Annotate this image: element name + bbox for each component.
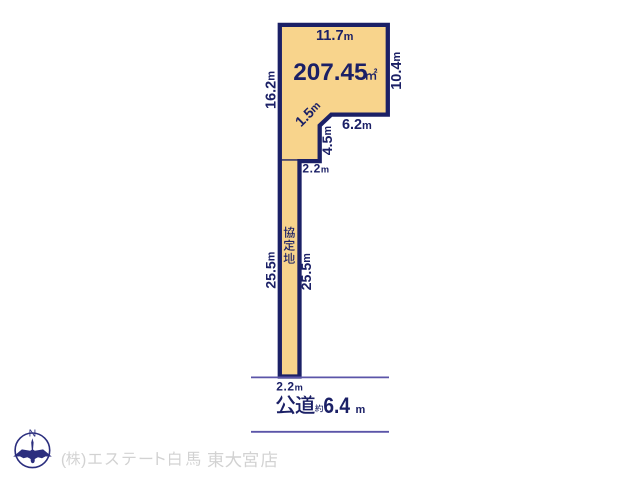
- svg-text:207.45: 207.45: [293, 59, 367, 86]
- svg-text:4.5m: 4.5m: [320, 126, 336, 155]
- svg-text:25.5m: 25.5m: [299, 253, 315, 290]
- svg-text:2.2m: 2.2m: [302, 162, 329, 176]
- svg-text:6.2m: 6.2m: [342, 117, 372, 133]
- svg-text:6.4: 6.4: [323, 394, 350, 418]
- svg-text:11.7m: 11.7m: [316, 28, 354, 44]
- svg-text:25.5m: 25.5m: [263, 252, 279, 289]
- svg-text:): ): [81, 452, 86, 469]
- svg-text:16.2m: 16.2m: [264, 71, 280, 109]
- svg-text:10.4m: 10.4m: [389, 52, 405, 90]
- svg-text:m: m: [356, 404, 366, 416]
- svg-text:(: (: [61, 452, 67, 469]
- svg-text:N: N: [29, 428, 37, 440]
- svg-text:2.2m: 2.2m: [276, 379, 303, 393]
